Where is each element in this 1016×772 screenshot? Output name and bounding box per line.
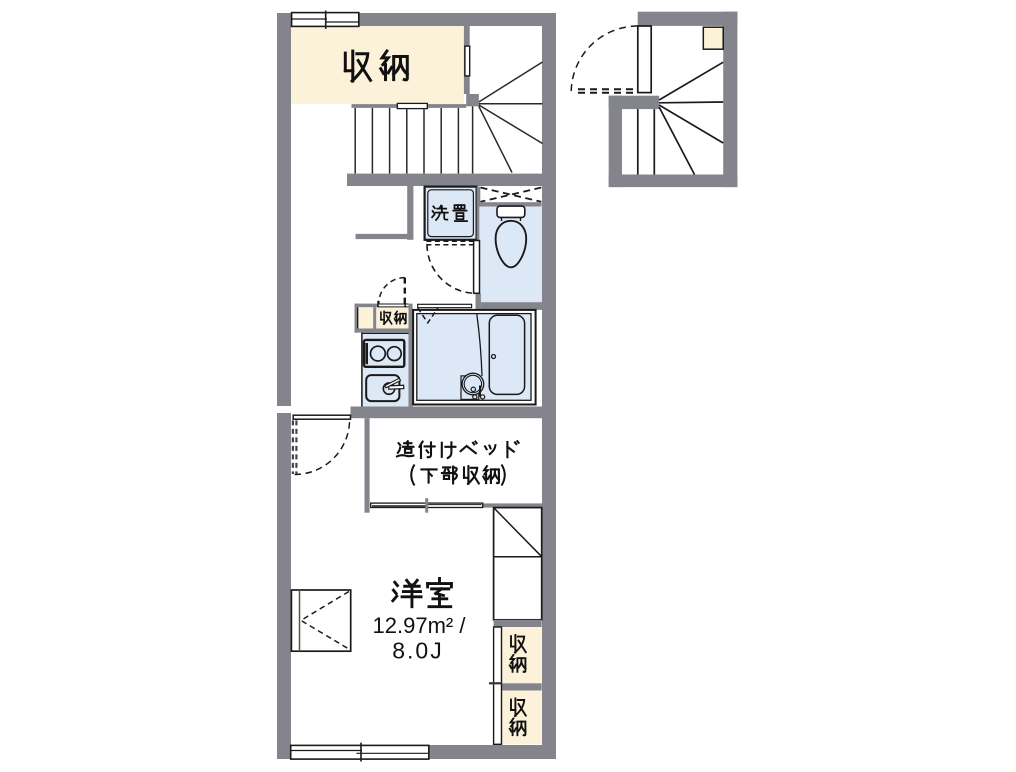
svg-text:8.0J: 8.0J [392, 638, 443, 664]
svg-text:12.97m² /: 12.97m² / [373, 613, 467, 638]
